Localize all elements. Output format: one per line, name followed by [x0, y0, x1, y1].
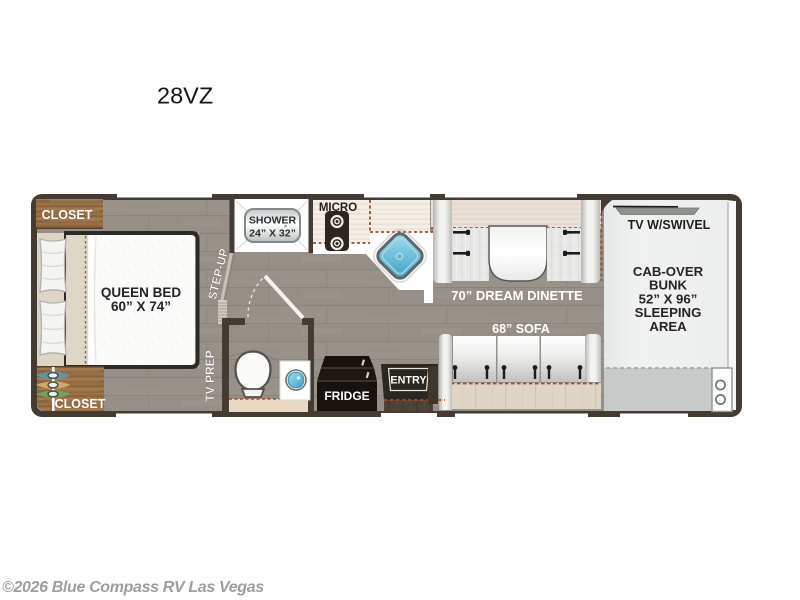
- svg-text:AREA: AREA: [649, 319, 687, 334]
- svg-text:FRIDGE: FRIDGE: [324, 389, 369, 403]
- svg-text:60” X 74”: 60” X 74”: [111, 299, 171, 314]
- svg-text:68” SOFA: 68” SOFA: [492, 322, 550, 336]
- svg-text:TV PREP: TV PREP: [203, 350, 217, 401]
- svg-text:24” X 32”: 24” X 32”: [249, 228, 296, 240]
- svg-text:©2026 Blue Compass RV Las Vega: ©2026 Blue Compass RV Las Vegas: [2, 579, 264, 596]
- svg-text:28VZ: 28VZ: [157, 83, 213, 109]
- svg-text:TV W/SWIVEL: TV W/SWIVEL: [628, 218, 711, 232]
- svg-text:70” DREAM DINETTE: 70” DREAM DINETTE: [451, 288, 583, 303]
- svg-text:QUEEN BED: QUEEN BED: [101, 285, 182, 300]
- svg-text:SHOWER: SHOWER: [249, 215, 297, 227]
- svg-text:ENTRY: ENTRY: [390, 375, 427, 387]
- svg-text:CLOSET: CLOSET: [55, 397, 106, 411]
- svg-text:MICRO: MICRO: [319, 202, 357, 214]
- svg-text:CLOSET: CLOSET: [42, 208, 93, 222]
